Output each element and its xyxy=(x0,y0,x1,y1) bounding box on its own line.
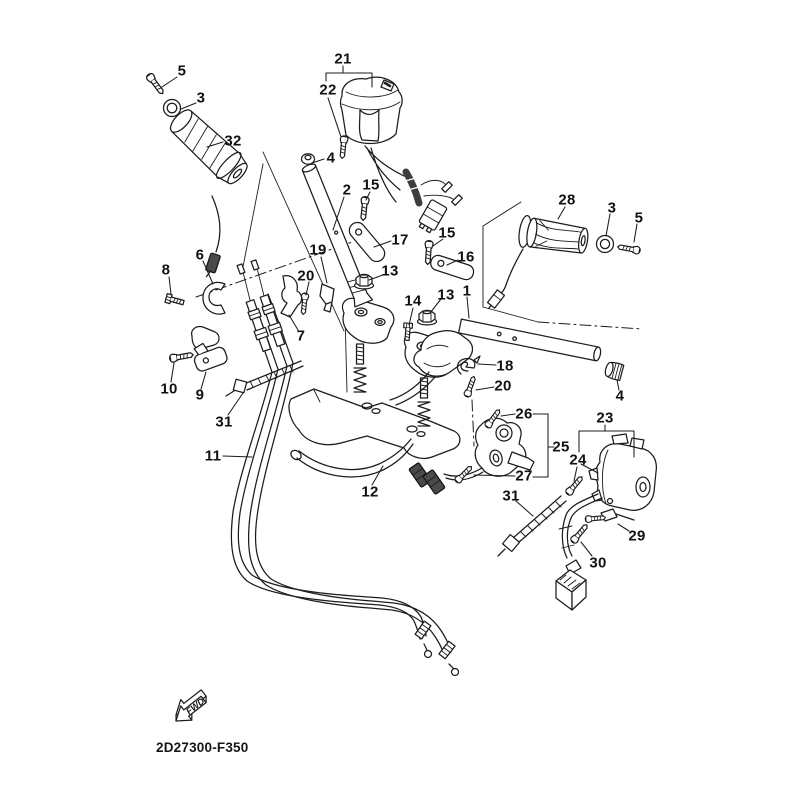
callout-19: 19 xyxy=(309,242,326,259)
callout-4: 4 xyxy=(327,150,336,167)
callout-26: 26 xyxy=(515,406,532,423)
callout-22: 22 xyxy=(319,82,336,99)
callout-31: 31 xyxy=(215,414,232,431)
callout-18: 18 xyxy=(496,358,513,375)
reference-frame-right xyxy=(483,202,642,329)
callout-14: 14 xyxy=(404,293,421,310)
callout-10: 10 xyxy=(160,381,177,398)
callout-16: 16 xyxy=(457,249,474,266)
diagram-code: 2D27300-F350 xyxy=(156,740,248,755)
callout-15: 15 xyxy=(362,177,379,194)
callout-23: 23 xyxy=(596,410,613,427)
callout-21: 21 xyxy=(334,51,351,68)
callout-3-b: 3 xyxy=(608,200,617,217)
callout-13: 13 xyxy=(381,263,398,280)
callout-11: 11 xyxy=(205,448,221,465)
callout-7: 7 xyxy=(297,328,306,345)
reference-frame-left xyxy=(243,152,347,392)
riser-base-left-drawing xyxy=(342,298,393,392)
heated-grip-drawing xyxy=(485,215,641,311)
wire-clamp-29-drawing xyxy=(585,509,634,523)
callout-1: 1 xyxy=(463,283,472,300)
callout-4-b: 4 xyxy=(616,388,625,405)
parts-diagram-page: FWD 5 3 32 21 22 4 2 15 17 15 16 19 20 6… xyxy=(0,0,800,800)
callout-32: 32 xyxy=(224,133,241,150)
callout-5: 5 xyxy=(178,63,187,80)
callout-27: 27 xyxy=(515,468,532,485)
clamp-holders-drawing xyxy=(165,276,334,373)
handle-crown-bracket-drawing xyxy=(289,389,460,458)
callout-2: 2 xyxy=(343,182,352,199)
callout-15-b: 15 xyxy=(438,225,455,242)
callout-28: 28 xyxy=(558,192,575,209)
fwd-arrow-icon: FWD xyxy=(167,686,212,728)
callout-30: 30 xyxy=(589,555,606,572)
callout-5-b: 5 xyxy=(635,210,644,227)
callout-9: 9 xyxy=(196,387,205,404)
callout-20: 20 xyxy=(297,268,314,285)
bar-end-cap-drawing xyxy=(604,361,624,381)
callout-3: 3 xyxy=(197,90,206,107)
callout-12: 12 xyxy=(361,484,378,501)
callout-25: 25 xyxy=(552,439,569,456)
diagram-canvas: FWD xyxy=(0,0,800,800)
start-switch-housing-drawing xyxy=(338,77,462,234)
grip-ring-drawing xyxy=(164,100,181,117)
callout-31-b: 31 xyxy=(502,488,519,505)
callout-6: 6 xyxy=(196,247,205,264)
callout-17: 17 xyxy=(391,232,408,249)
callout-24: 24 xyxy=(569,452,586,469)
callout-13-b: 13 xyxy=(437,287,454,304)
callout-29: 29 xyxy=(628,528,645,545)
centerline-perch xyxy=(472,400,474,446)
callout-8: 8 xyxy=(162,262,171,279)
callout-20-b: 20 xyxy=(494,378,511,395)
